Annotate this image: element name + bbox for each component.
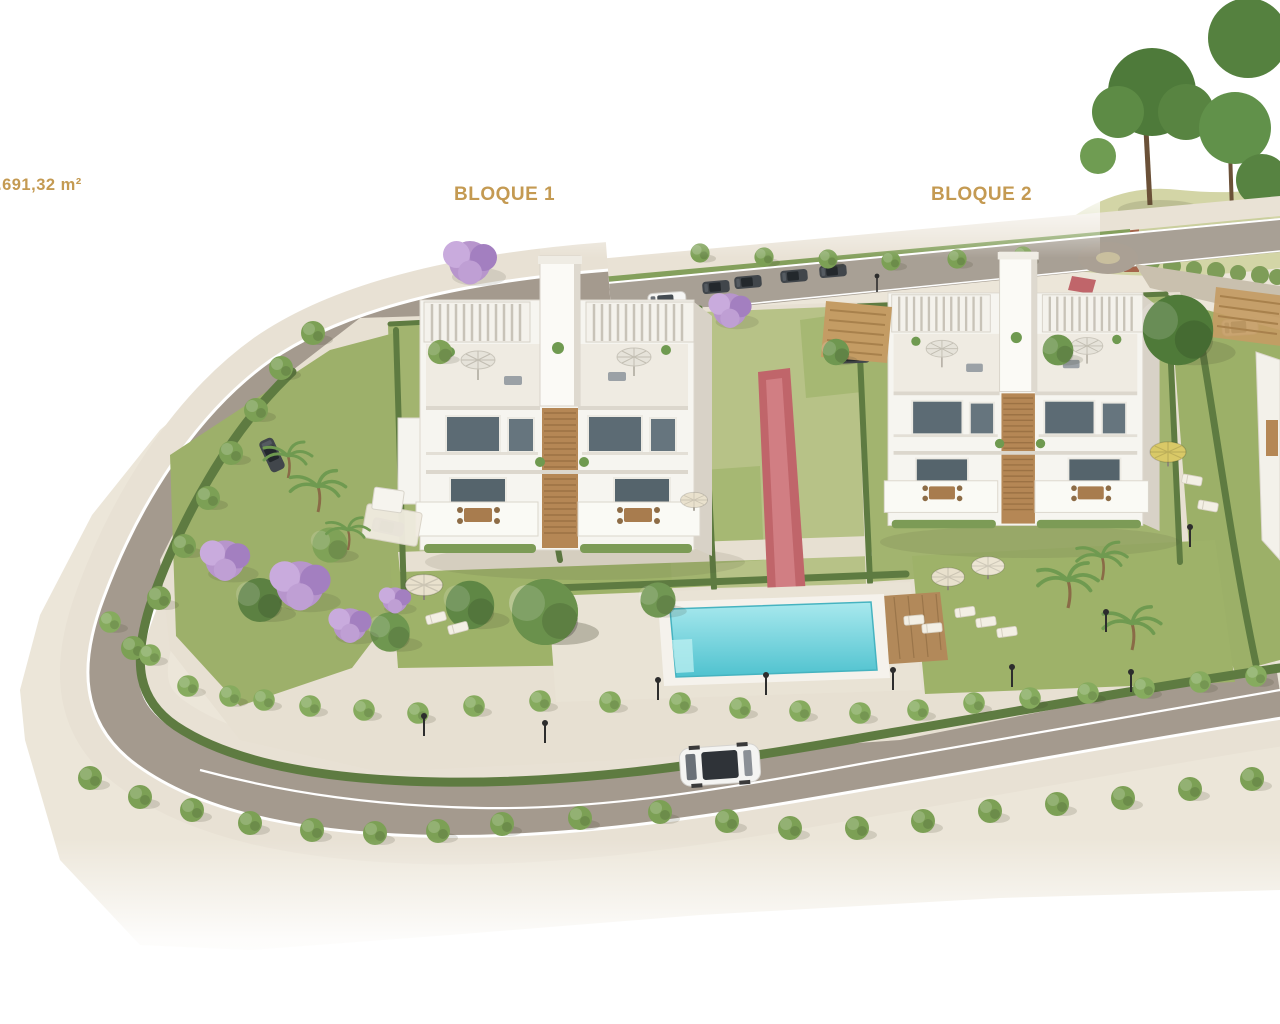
garden-table xyxy=(372,487,405,513)
bloque-1-label: BLOQUE 1 xyxy=(454,184,555,206)
white-car-main-road xyxy=(679,741,762,788)
bloque-2-label: BLOQUE 2 xyxy=(931,184,1032,206)
building-2-shadow xyxy=(880,526,1180,558)
building-bloque-2 xyxy=(884,252,1159,531)
pool-area xyxy=(548,582,948,702)
site-plan-render: .691,32 m² BLOQUE 1 BLOQUE 2 xyxy=(0,0,1280,1024)
building-bloque-1 xyxy=(416,256,712,556)
render-canvas xyxy=(0,0,1280,1024)
large-trees xyxy=(1080,0,1280,220)
swimming-pool xyxy=(670,602,877,677)
area-label: .691,32 m² xyxy=(0,176,82,195)
bottom-fade xyxy=(0,838,1280,1024)
